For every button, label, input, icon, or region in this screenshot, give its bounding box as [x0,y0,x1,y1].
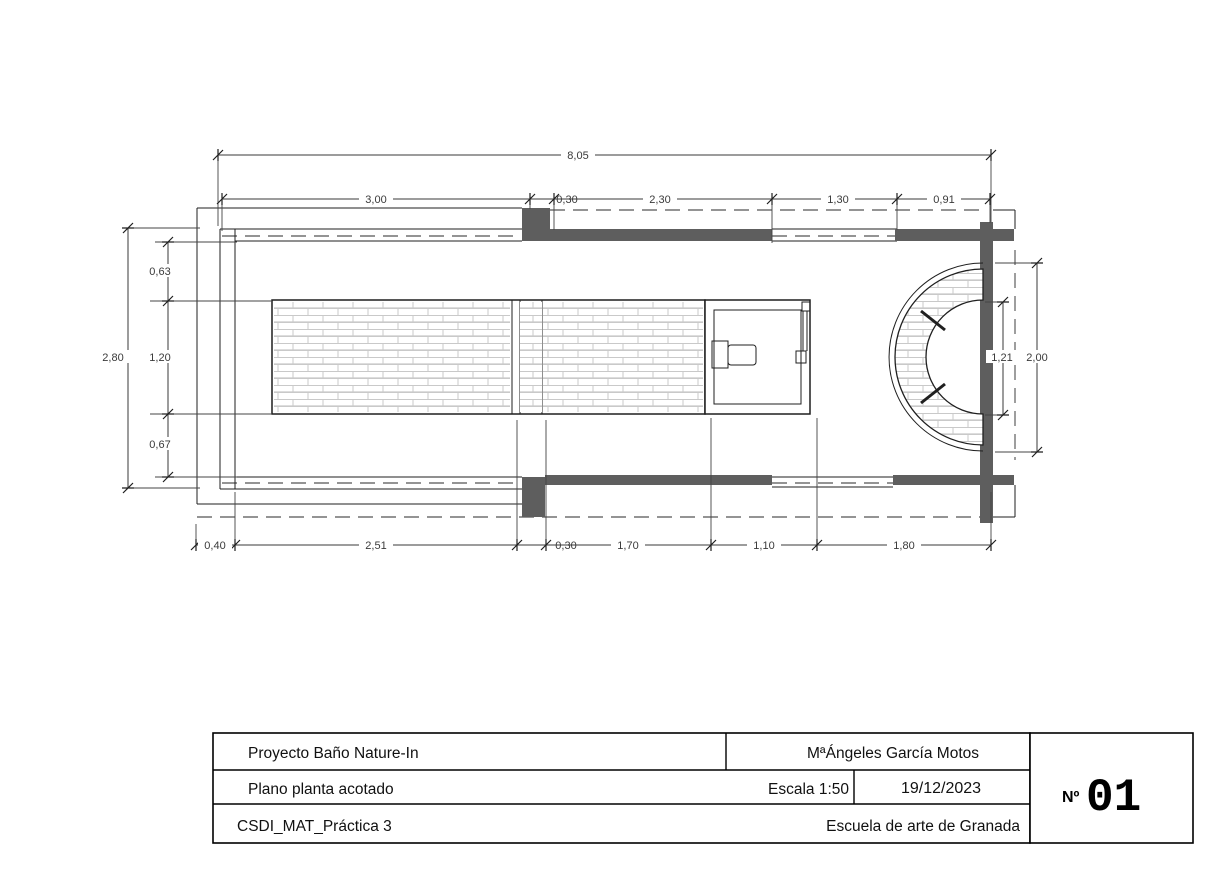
dim-top-1: 0,30 [556,194,577,206]
title-author: MªÁngeles García Motos [807,745,979,762]
title-course: CSDI_MAT_Práctica 3 [237,818,392,835]
wall-bottom-pier [522,477,545,517]
dim-bottom-2: 0,30 [555,540,576,552]
curved-shower-apse [889,263,983,451]
title-scale: Escala 1:50 [768,781,849,798]
dim-right-inner: 1,21 [991,352,1012,364]
bathtub-hatch-left [274,302,510,412]
wall-top-band [550,229,772,241]
bathtub-hatch-right [543,302,703,412]
title-plan-name: Plano planta acotado [248,781,394,798]
partition-wall-hatch [520,302,542,412]
dim-bottom-1: 2,51 [365,540,386,552]
wall-bottom-band [545,475,772,485]
title-school: Escuela de arte de Granada [826,818,1020,835]
dim-total-width: 8,05 [567,150,588,162]
sheet-label: Nº [1062,789,1080,806]
title-date: 19/12/2023 [901,780,981,797]
dim-left-2: 0,67 [149,439,170,451]
dim-top-0: 3,00 [365,194,386,206]
dim-right-outer: 2,00 [1026,352,1047,364]
wall-top-right-band [895,229,1014,241]
toilet-enclosure [705,300,810,414]
dim-left-total: 2,80 [102,352,123,364]
title-block: Proyecto Baño Nature-In MªÁngeles García… [213,733,1193,843]
wall-top-pier [522,208,550,241]
dim-bottom-0: 0,40 [204,540,225,552]
page: 8,05 3,00 0,30 2,30 1,30 0,91 2,80 0,63 … [0,0,1222,869]
sheet-number: 01 [1086,772,1141,824]
apse-hatched-ring [895,269,983,445]
dim-left-0: 0,63 [149,266,170,278]
dim-top-3: 1,30 [827,194,848,206]
dim-bottom-4: 1,10 [753,540,774,552]
dim-top-2: 2,30 [649,194,670,206]
bathtub [272,300,705,414]
dim-top-4: 0,91 [933,194,954,206]
dim-bottom-3: 1,70 [617,540,638,552]
floor-plan-drawing: 8,05 3,00 0,30 2,30 1,30 0,91 2,80 0,63 … [0,0,1222,869]
dim-bottom-5: 1,80 [893,540,914,552]
wall-bottom-right-band [893,475,1014,485]
dim-left-1: 1,20 [149,352,170,364]
title-project: Proyecto Baño Nature-In [248,745,419,762]
